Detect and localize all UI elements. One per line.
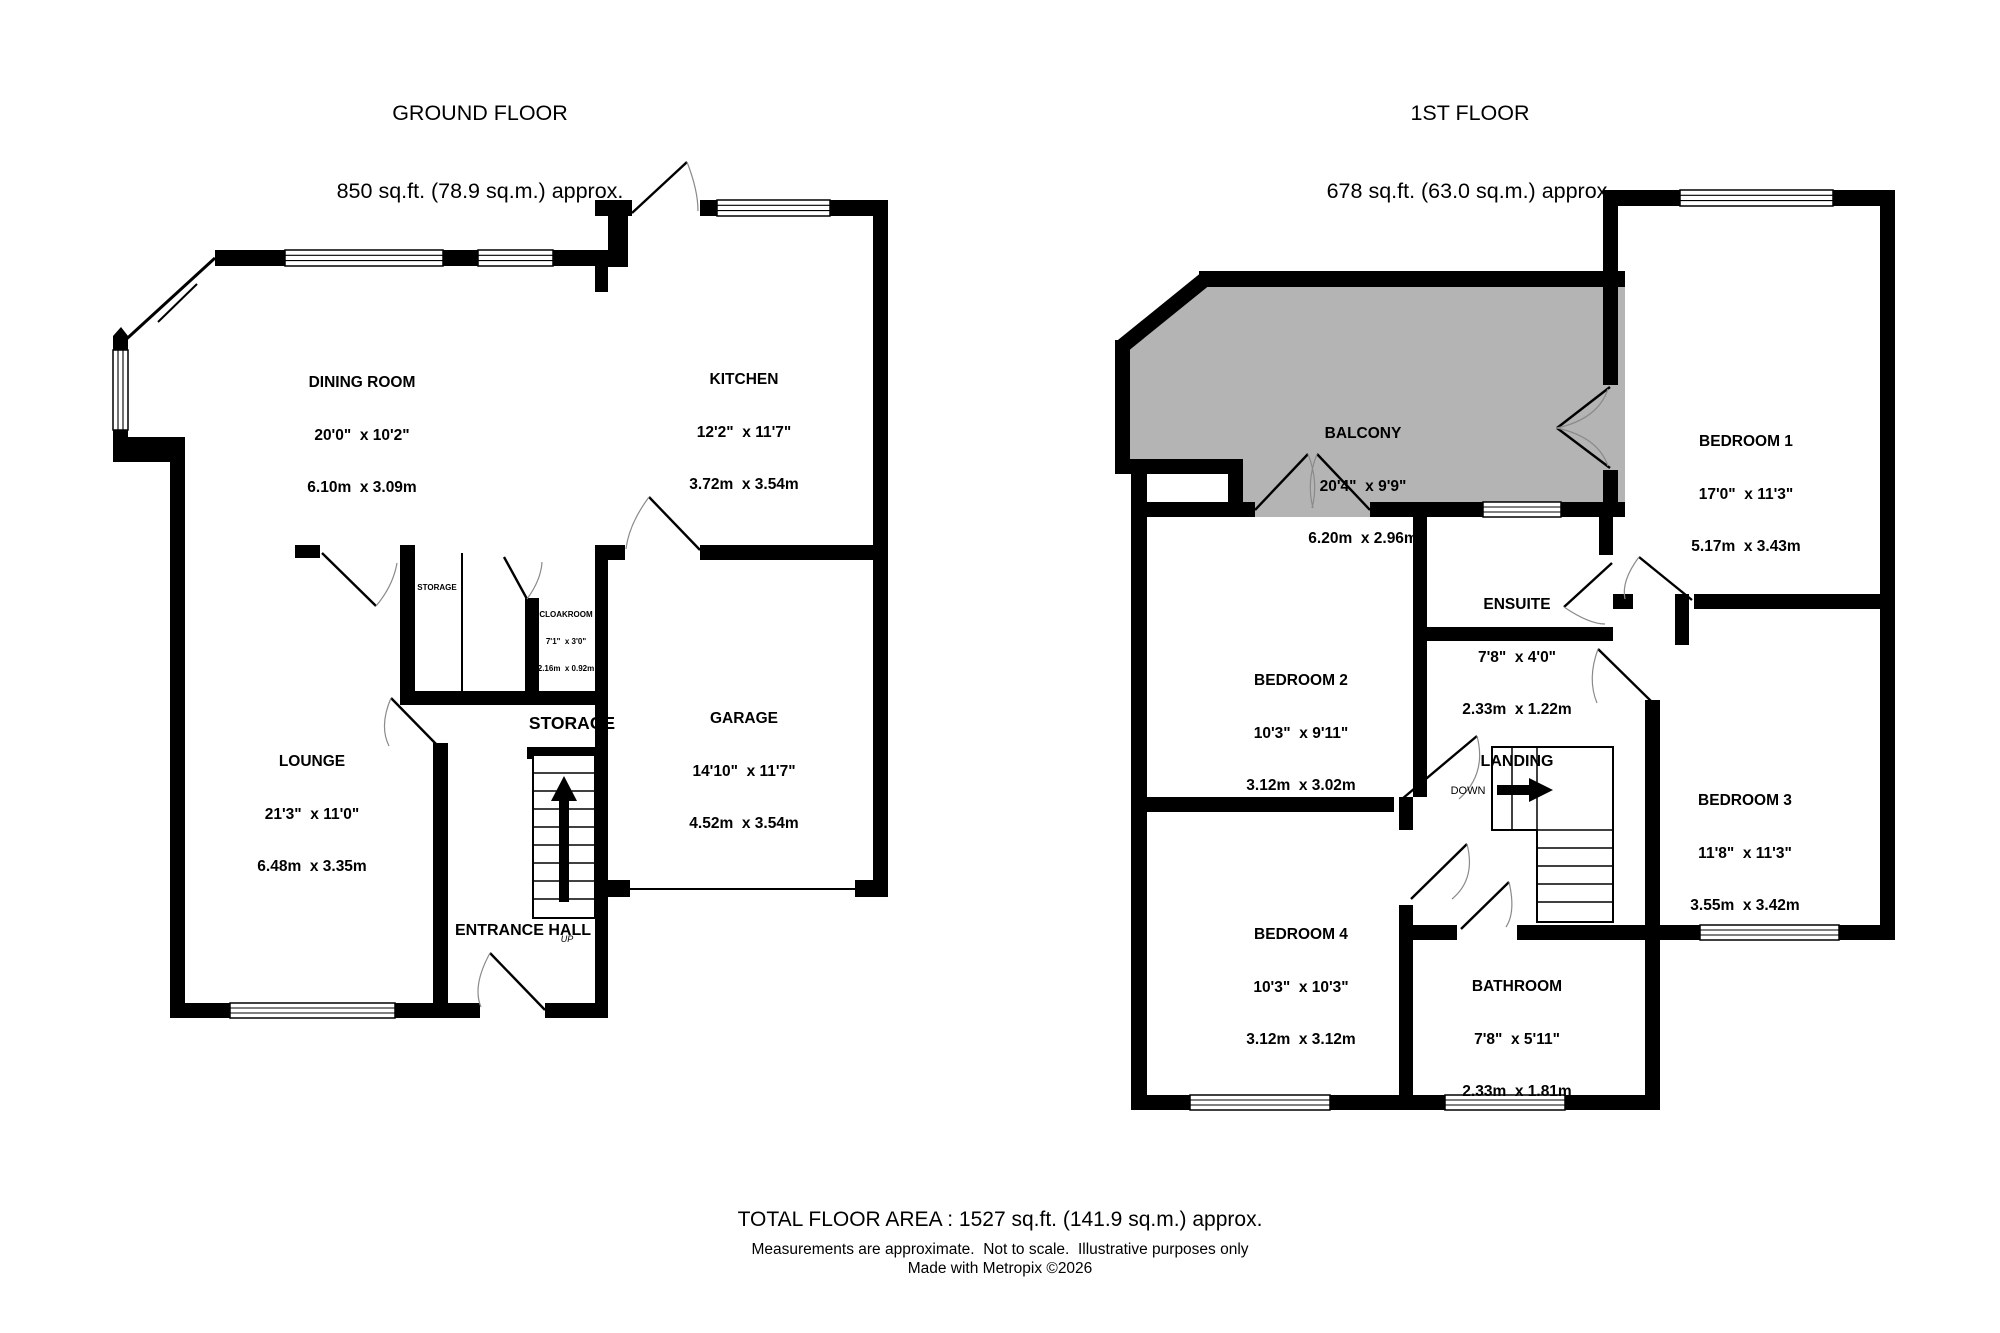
dining-room-label: DINING ROOM 20'0" x 10'2" 6.10m x 3.09m xyxy=(307,339,416,532)
floorplan-drawing xyxy=(0,0,2000,1333)
ground-stairs xyxy=(533,755,595,918)
room-dim-imperial: 20'0" x 10'2" xyxy=(307,427,416,445)
room-name: LOUNGE xyxy=(257,753,366,771)
storage-large-label: STORAGE xyxy=(529,714,615,732)
bedroom4-label: BEDROOM 4 10'3" x 10'3" 3.12m x 3.12m xyxy=(1246,891,1355,1084)
bedroom2-label: BEDROOM 2 10'3" x 9'11" 3.12m x 3.02m xyxy=(1246,637,1355,830)
first-floor-title-name: 1ST FLOOR xyxy=(1327,100,1614,126)
room-dim-metric: 3.55m x 3.42m xyxy=(1690,897,1799,915)
first-floor-title: 1ST FLOOR 678 sq.ft. (63.0 sq.m.) approx… xyxy=(1327,48,1614,256)
room-name: BATHROOM xyxy=(1462,978,1571,996)
room-name: BEDROOM 2 xyxy=(1246,672,1355,690)
garage-label: GARAGE 14'10" x 11'7" 4.52m x 3.54m xyxy=(689,675,798,868)
floorplan-page: GROUND FLOOR 850 sq.ft. (78.9 sq.m.) app… xyxy=(0,0,2000,1333)
room-dim-imperial: 17'0" x 11'3" xyxy=(1691,486,1800,504)
down-label: DOWN xyxy=(1451,783,1486,801)
room-name: KITCHEN xyxy=(689,371,798,389)
total-floor-area: TOTAL FLOOR AREA : 1527 sq.ft. (141.9 sq… xyxy=(738,1208,1263,1232)
ground-windows xyxy=(113,200,830,1018)
cloakroom-label: CLOAKROOM 7'1" x 3'0" 2.16m x 0.92m xyxy=(538,592,594,691)
room-dim-metric: 4.52m x 3.54m xyxy=(689,815,798,833)
storage-small-label: STORAGE xyxy=(417,583,456,592)
room-name: BALCONY xyxy=(1308,425,1417,443)
room-dim-metric: 3.12m x 3.02m xyxy=(1246,777,1355,795)
room-dim-imperial: 7'1" x 3'0" xyxy=(538,637,594,646)
ground-floor-title-area: 850 sq.ft. (78.9 sq.m.) approx. xyxy=(337,178,624,204)
room-name: CLOAKROOM xyxy=(538,610,594,619)
room-dim-imperial: 11'8" x 11'3" xyxy=(1690,845,1799,863)
up-label: UP xyxy=(561,931,574,949)
room-name: BEDROOM 4 xyxy=(1246,926,1355,944)
bathroom-label: BATHROOM 7'8" x 5'11" 2.33m x 1.81m xyxy=(1462,943,1571,1136)
room-dim-metric: 2.33m x 1.81m xyxy=(1462,1083,1571,1101)
ground-bay-window xyxy=(120,258,215,345)
room-dim-imperial: 12'2" x 11'7" xyxy=(689,424,798,442)
room-dim-imperial: 20'4" x 9'9" xyxy=(1308,478,1417,496)
ensuite-label: ENSUITE 7'8" x 4'0" 2.33m x 1.22m xyxy=(1462,561,1571,754)
room-dim-imperial: 7'8" x 5'11" xyxy=(1462,1031,1571,1049)
ground-floor-title: GROUND FLOOR 850 sq.ft. (78.9 sq.m.) app… xyxy=(337,48,624,256)
room-dim-imperial: 21'3" x 11'0" xyxy=(257,806,366,824)
room-name: DINING ROOM xyxy=(307,374,416,392)
ground-floor-plan xyxy=(113,162,888,1018)
room-name: BEDROOM 3 xyxy=(1690,792,1799,810)
room-name: GARAGE xyxy=(689,710,798,728)
lounge-label: LOUNGE 21'3" x 11'0" 6.48m x 3.35m xyxy=(257,718,366,911)
first-floor-title-area: 678 sq.ft. (63.0 sq.m.) approx. xyxy=(1327,178,1614,204)
footer-credit: Made with Metropix ©2026 xyxy=(908,1260,1093,1278)
room-dim-metric: 6.48m x 3.35m xyxy=(257,858,366,876)
ground-walls xyxy=(113,200,888,1018)
balcony-label: BALCONY 20'4" x 9'9" 6.20m x 2.96m xyxy=(1308,390,1417,583)
room-dim-imperial: 14'10" x 11'7" xyxy=(689,763,798,781)
landing-label: LANDING xyxy=(1481,753,1554,770)
room-name: BEDROOM 1 xyxy=(1691,433,1800,451)
room-dim-metric: 3.12m x 3.12m xyxy=(1246,1031,1355,1049)
bedroom3-label: BEDROOM 3 11'8" x 11'3" 3.55m x 3.42m xyxy=(1690,757,1799,950)
ground-floor-title-name: GROUND FLOOR xyxy=(337,100,624,126)
first-stairs xyxy=(1492,747,1613,922)
room-dim-metric: 2.16m x 0.92m xyxy=(538,664,594,673)
room-dim-metric: 6.20m x 2.96m xyxy=(1308,530,1417,548)
room-dim-imperial: 10'3" x 9'11" xyxy=(1246,725,1355,743)
kitchen-label: KITCHEN 12'2" x 11'7" 3.72m x 3.54m xyxy=(689,336,798,529)
room-name: ENSUITE xyxy=(1462,596,1571,614)
room-dim-metric: 3.72m x 3.54m xyxy=(689,476,798,494)
footer-disclaimer: Measurements are approximate. Not to sca… xyxy=(751,1241,1248,1259)
room-dim-metric: 6.10m x 3.09m xyxy=(307,479,416,497)
bedroom1-label: BEDROOM 1 17'0" x 11'3" 5.17m x 3.43m xyxy=(1691,398,1800,591)
room-dim-metric: 2.33m x 1.22m xyxy=(1462,701,1571,719)
room-dim-imperial: 7'8" x 4'0" xyxy=(1462,649,1571,667)
room-dim-metric: 5.17m x 3.43m xyxy=(1691,538,1800,556)
room-dim-imperial: 10'3" x 10'3" xyxy=(1246,979,1355,997)
